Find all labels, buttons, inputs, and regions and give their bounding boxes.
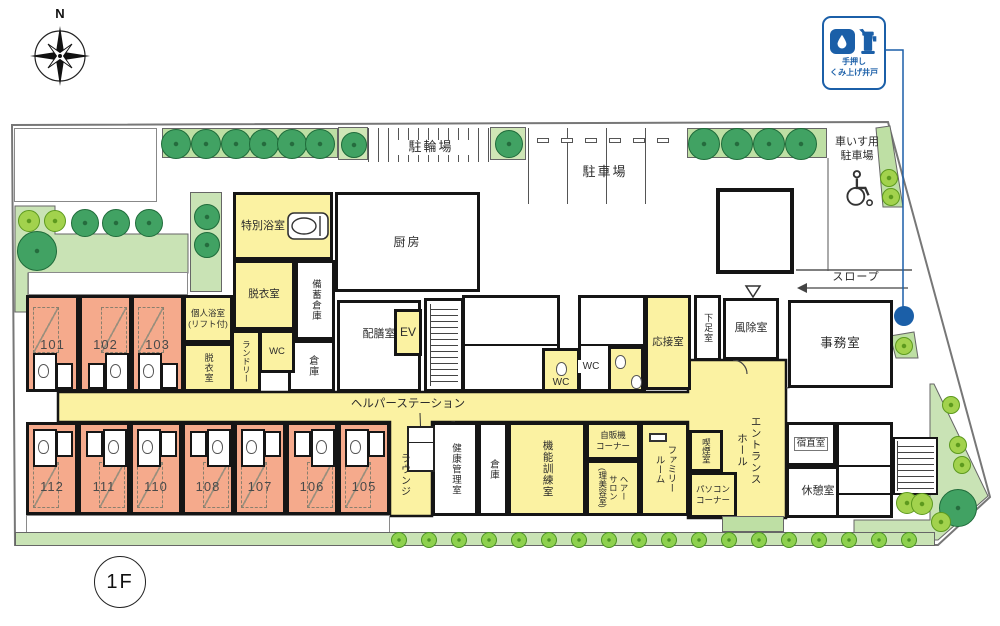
wc-a-label: WC bbox=[269, 346, 285, 358]
parking-dash-mark bbox=[585, 138, 597, 143]
elevator-label: EV bbox=[400, 325, 416, 340]
external-staircase bbox=[893, 437, 938, 495]
room-number: 111 bbox=[81, 479, 127, 495]
toilet-icon bbox=[142, 440, 153, 454]
floor-badge: 1F bbox=[94, 556, 146, 608]
stock-warehouse-label: 備蓄倉庫 bbox=[309, 279, 321, 321]
parking-stall-line bbox=[528, 128, 529, 204]
water-drop-icon bbox=[830, 29, 855, 54]
room-vending-corner: 自販機 コーナー bbox=[586, 422, 640, 460]
entrance-mark bbox=[746, 286, 760, 297]
room-undressing-1: 脱衣室 bbox=[233, 260, 295, 330]
health-management-label: 健康管理室 bbox=[449, 443, 461, 496]
tv-icon bbox=[649, 433, 667, 442]
kitchen-label: 厨房 bbox=[393, 235, 421, 250]
tree-icon bbox=[44, 210, 66, 232]
private-bath-label: 個人浴室 (リフト付) bbox=[188, 308, 228, 329]
well-location-dot bbox=[894, 306, 914, 326]
undressing1-label: 脱衣室 bbox=[248, 288, 280, 301]
tree-icon bbox=[880, 169, 898, 187]
bush-icon bbox=[421, 532, 437, 548]
tree-icon bbox=[895, 337, 913, 355]
tree-icon bbox=[161, 129, 191, 159]
compass-north-label: N bbox=[55, 6, 64, 21]
open-lot bbox=[14, 128, 157, 202]
resident-room-112: 112 bbox=[26, 422, 78, 515]
parking-dash-mark bbox=[657, 138, 669, 143]
closet-icon bbox=[88, 363, 105, 389]
closet-icon bbox=[368, 431, 385, 457]
tree-icon bbox=[949, 436, 967, 454]
toilet-icon bbox=[350, 440, 361, 454]
room-number: 102 bbox=[82, 337, 129, 353]
tree-icon bbox=[71, 209, 99, 237]
smoking-label: 喫煙室 bbox=[701, 438, 712, 464]
tree-icon bbox=[249, 129, 279, 159]
closet-icon bbox=[56, 431, 73, 457]
stair-treads bbox=[897, 441, 934, 491]
veranda-south bbox=[26, 515, 390, 533]
room-wc-c bbox=[608, 346, 644, 392]
closet-icon bbox=[161, 363, 178, 389]
wc-c-label: WC bbox=[578, 360, 604, 373]
lounge-label: ラウンジ bbox=[392, 440, 416, 510]
room-number: 106 bbox=[289, 479, 335, 495]
resident-room-102: 102 bbox=[79, 295, 132, 392]
room-number: 103 bbox=[134, 337, 181, 353]
helper-station-label: ヘルパーステーション bbox=[342, 397, 474, 411]
room-smoking: 喫煙室 bbox=[689, 430, 723, 472]
tree-icon bbox=[17, 231, 57, 271]
resident-room-110: 110 bbox=[130, 422, 182, 515]
reception-label: 応接室 bbox=[652, 336, 684, 349]
bush-icon bbox=[571, 532, 587, 548]
bush-icon bbox=[661, 532, 677, 548]
toilet-icon bbox=[316, 440, 327, 454]
parking-dash-mark bbox=[561, 138, 573, 143]
room-reception: 応接室 bbox=[645, 295, 691, 390]
room-office: 事務室 bbox=[788, 300, 893, 388]
room-number: 101 bbox=[29, 337, 76, 353]
bathroom-unit bbox=[33, 429, 57, 467]
room-special-bath: 特別浴室 bbox=[233, 192, 333, 260]
bush-icon bbox=[631, 532, 647, 548]
tree-icon bbox=[721, 128, 753, 160]
main-staircase bbox=[424, 298, 464, 392]
night-duty-label: 宿直室 bbox=[794, 437, 829, 451]
function-training-label: 機能訓練室 bbox=[540, 440, 553, 498]
tree-icon bbox=[495, 130, 523, 158]
tree-icon bbox=[753, 128, 785, 160]
closet-icon bbox=[264, 431, 281, 457]
slope-label: スロープ bbox=[822, 271, 890, 284]
closet-icon bbox=[294, 431, 311, 457]
wheelchair-icon bbox=[843, 170, 875, 208]
windbreak-label: 風除室 bbox=[735, 322, 768, 336]
well-sign-line1: 手押し bbox=[830, 57, 878, 67]
closet-icon bbox=[160, 431, 177, 457]
room-windbreak: 風除室 bbox=[723, 298, 779, 360]
wc-b-label: WC bbox=[553, 377, 570, 390]
resident-room-107: 107 bbox=[234, 422, 286, 515]
bush-icon bbox=[811, 532, 827, 548]
bathroom-unit bbox=[138, 353, 162, 391]
bush-icon bbox=[721, 532, 737, 548]
room-private-bath: 個人浴室 (リフト付) bbox=[183, 295, 233, 343]
bush-icon bbox=[391, 532, 407, 548]
parking-dash-mark bbox=[633, 138, 645, 143]
tree-icon bbox=[194, 204, 220, 230]
room-shoe: 下足室 bbox=[694, 295, 721, 361]
pc-corner-label: パソコン コーナー bbox=[696, 484, 730, 505]
special-bath-label: 特別浴室 bbox=[241, 219, 285, 233]
entrance-hall-label: エントランス ホール bbox=[726, 390, 770, 510]
laundry-label: ランドリー bbox=[241, 340, 252, 383]
tree-icon bbox=[942, 396, 960, 414]
tree-icon bbox=[135, 209, 163, 237]
resident-room-103: 103 bbox=[131, 295, 184, 392]
toilet-icon bbox=[38, 440, 49, 454]
entrance-lawn bbox=[722, 516, 784, 532]
closet-icon bbox=[86, 431, 103, 457]
parking-dash-mark bbox=[609, 138, 621, 143]
resident-room-108: 108 bbox=[182, 422, 234, 515]
room-number: 110 bbox=[133, 479, 179, 495]
tree-icon bbox=[18, 210, 40, 232]
floor-label: 1F bbox=[106, 571, 133, 594]
toilet-icon bbox=[143, 364, 154, 378]
bush-icon bbox=[601, 532, 617, 548]
vending-corner-label: 自販機 コーナー bbox=[596, 430, 630, 451]
bush-icon bbox=[541, 532, 557, 548]
closet-icon bbox=[190, 431, 207, 457]
parking-dash-mark bbox=[537, 138, 549, 143]
family-room-label: ファミリー ルーム bbox=[653, 445, 677, 493]
floor-plan: N 手押し くみ上げ井戸 駐輪場 駐車場 車い bbox=[0, 0, 1000, 626]
room-warehouse-b: 倉庫 bbox=[478, 422, 508, 516]
room-stock-warehouse: 備蓄倉庫 bbox=[295, 260, 335, 340]
hand-pump-icon bbox=[857, 28, 879, 55]
bush-icon bbox=[451, 532, 467, 548]
tree-icon bbox=[194, 232, 220, 258]
stair-treads bbox=[430, 304, 458, 386]
well-sign: 手押し くみ上げ井戸 bbox=[822, 16, 886, 90]
bathroom-unit bbox=[207, 429, 231, 467]
room-warehouse-a: 倉庫 bbox=[288, 340, 335, 392]
veranda-north bbox=[28, 272, 188, 295]
toilet-icon bbox=[38, 364, 49, 378]
bush-icon bbox=[871, 532, 887, 548]
bathroom-unit bbox=[105, 353, 129, 391]
room-undressing-2: 脱衣室 bbox=[183, 343, 233, 392]
room-wc-a: WC bbox=[259, 330, 295, 373]
bathroom-unit bbox=[33, 353, 57, 391]
bush-icon bbox=[901, 532, 917, 548]
room-number: 105 bbox=[341, 479, 387, 495]
bathroom-unit bbox=[241, 429, 265, 467]
toilet-icon bbox=[110, 364, 121, 378]
room-health-management: 健康管理室 bbox=[432, 422, 478, 516]
bathroom-unit bbox=[103, 429, 127, 467]
undressing2-label: 脱衣室 bbox=[202, 353, 213, 383]
tree-icon bbox=[931, 512, 951, 532]
bush-icon bbox=[511, 532, 527, 548]
planting-strip-south bbox=[15, 532, 935, 546]
room-number: 112 bbox=[29, 479, 75, 495]
room-function-training: 機能訓練室 bbox=[508, 422, 586, 516]
tree-icon bbox=[785, 128, 817, 160]
resident-room-105: 105 bbox=[338, 422, 390, 515]
slope-arrow-head bbox=[797, 283, 807, 293]
toilet-icon bbox=[246, 440, 257, 454]
serving-label: 配膳室 bbox=[363, 328, 396, 342]
break-room-label: 休憩室 bbox=[802, 485, 835, 499]
partition bbox=[465, 344, 557, 346]
toilet-icon bbox=[615, 355, 626, 369]
closet-icon bbox=[56, 363, 73, 389]
tree-icon bbox=[882, 188, 900, 206]
bush-icon bbox=[691, 532, 707, 548]
compass-rose-icon: N bbox=[26, 4, 94, 96]
room-family: ファミリー ルーム bbox=[640, 422, 689, 516]
parking-label: 駐車場 bbox=[565, 164, 645, 180]
bicycle-parking-label: 駐輪場 bbox=[392, 140, 470, 155]
room-elevator: EV bbox=[394, 309, 422, 356]
resident-room-106: 106 bbox=[286, 422, 338, 515]
room-wc-b: WC bbox=[542, 348, 580, 392]
resident-room-111: 111 bbox=[78, 422, 130, 515]
resident-room-101: 101 bbox=[26, 295, 79, 392]
partition bbox=[839, 465, 890, 467]
room-number: 108 bbox=[185, 479, 231, 495]
tree-icon bbox=[688, 128, 720, 160]
warehouse-a-label: 倉庫 bbox=[305, 355, 318, 377]
annex-block bbox=[716, 188, 794, 274]
hair-salon-label: ヘアー サロン (理美容室) bbox=[597, 468, 629, 508]
room-number: 107 bbox=[237, 479, 283, 495]
room-kitchen: 厨房 bbox=[335, 192, 480, 292]
toilet-icon bbox=[212, 440, 223, 454]
toilet-icon bbox=[108, 440, 119, 454]
wheelchair-parking-label: 車いす用 駐車場 bbox=[822, 134, 892, 164]
bush-icon bbox=[841, 532, 857, 548]
service-rooms-block bbox=[836, 422, 893, 518]
shoe-room-label: 下足室 bbox=[702, 313, 713, 343]
room-laundry: ランドリー bbox=[231, 330, 261, 392]
tree-icon bbox=[102, 209, 130, 237]
parking-stall-line bbox=[645, 128, 646, 204]
bathroom-unit bbox=[137, 429, 161, 467]
room-hair-salon: ヘアー サロン (理美容室) bbox=[586, 460, 640, 516]
tree-icon bbox=[953, 456, 971, 474]
bush-icon bbox=[751, 532, 767, 548]
bush-icon bbox=[481, 532, 497, 548]
tree-icon bbox=[911, 493, 933, 515]
tree-icon bbox=[221, 129, 251, 159]
partition bbox=[839, 493, 890, 495]
bush-icon bbox=[781, 532, 797, 548]
bathroom-unit bbox=[345, 429, 369, 467]
tree-icon bbox=[341, 132, 367, 158]
toilet-icon bbox=[631, 375, 642, 389]
toilet-icon bbox=[556, 362, 567, 376]
bathroom-unit bbox=[311, 429, 335, 467]
warehouse-b-label: 倉庫 bbox=[487, 459, 499, 480]
tree-icon bbox=[191, 129, 221, 159]
tree-icon bbox=[277, 129, 307, 159]
well-sign-line2: くみ上げ井戸 bbox=[830, 68, 878, 78]
office-label: 事務室 bbox=[820, 336, 861, 352]
bathtub-icon bbox=[287, 211, 329, 241]
room-night-duty: 宿直室 bbox=[786, 422, 836, 466]
tree-icon bbox=[305, 129, 335, 159]
